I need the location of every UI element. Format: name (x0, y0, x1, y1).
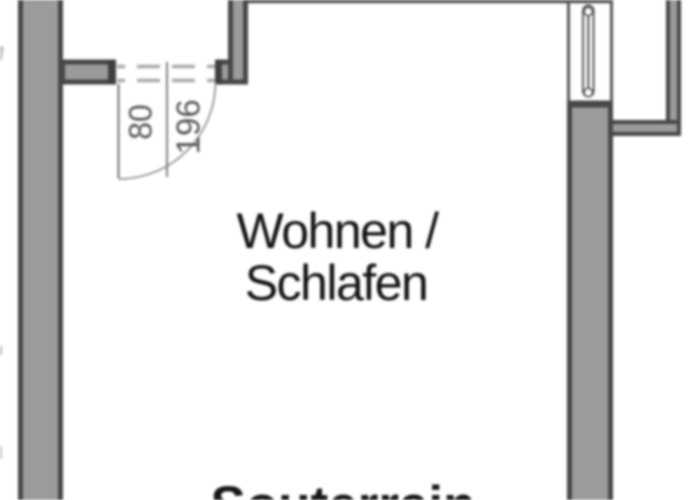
svg-text:80: 80 (123, 104, 159, 140)
svg-text:Wohnen /: Wohnen / (236, 203, 439, 259)
svg-text:Souterrain: Souterrain (210, 476, 475, 500)
svg-text:Schlafen: Schlafen (245, 255, 428, 311)
svg-text:196: 196 (170, 99, 207, 154)
